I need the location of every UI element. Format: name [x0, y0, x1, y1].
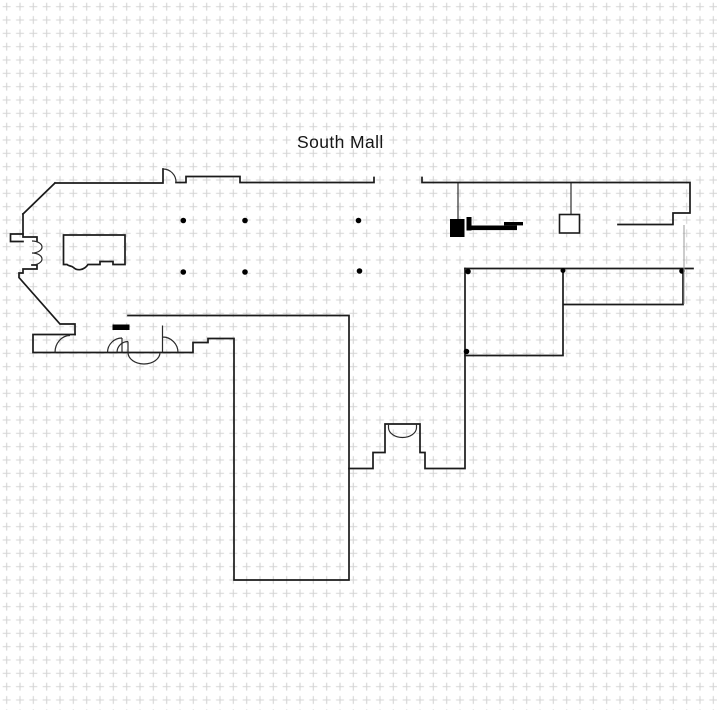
- escalator-block-small: [467, 217, 472, 231]
- escalator-rail-bar: [471, 226, 517, 231]
- escalator-block: [450, 219, 465, 237]
- column-dot: [357, 268, 363, 274]
- column-dot: [242, 269, 248, 275]
- floor-plan-drawing: [0, 0, 717, 710]
- column-dot: [181, 269, 187, 275]
- floor-plan-title-label: South Mall: [297, 132, 384, 153]
- grid-background: [0, 0, 717, 710]
- column-dot: [561, 268, 566, 273]
- column-dot: [356, 218, 362, 224]
- column-dot: [181, 218, 187, 224]
- column-dot: [464, 349, 470, 355]
- equipment-box: [560, 215, 580, 234]
- column-dot: [242, 218, 248, 224]
- floor-plan-canvas: South Mall: [0, 0, 717, 710]
- wall-hatch-bar: [113, 325, 130, 331]
- escalator-rail-step: [504, 222, 523, 225]
- column-dot: [465, 269, 471, 275]
